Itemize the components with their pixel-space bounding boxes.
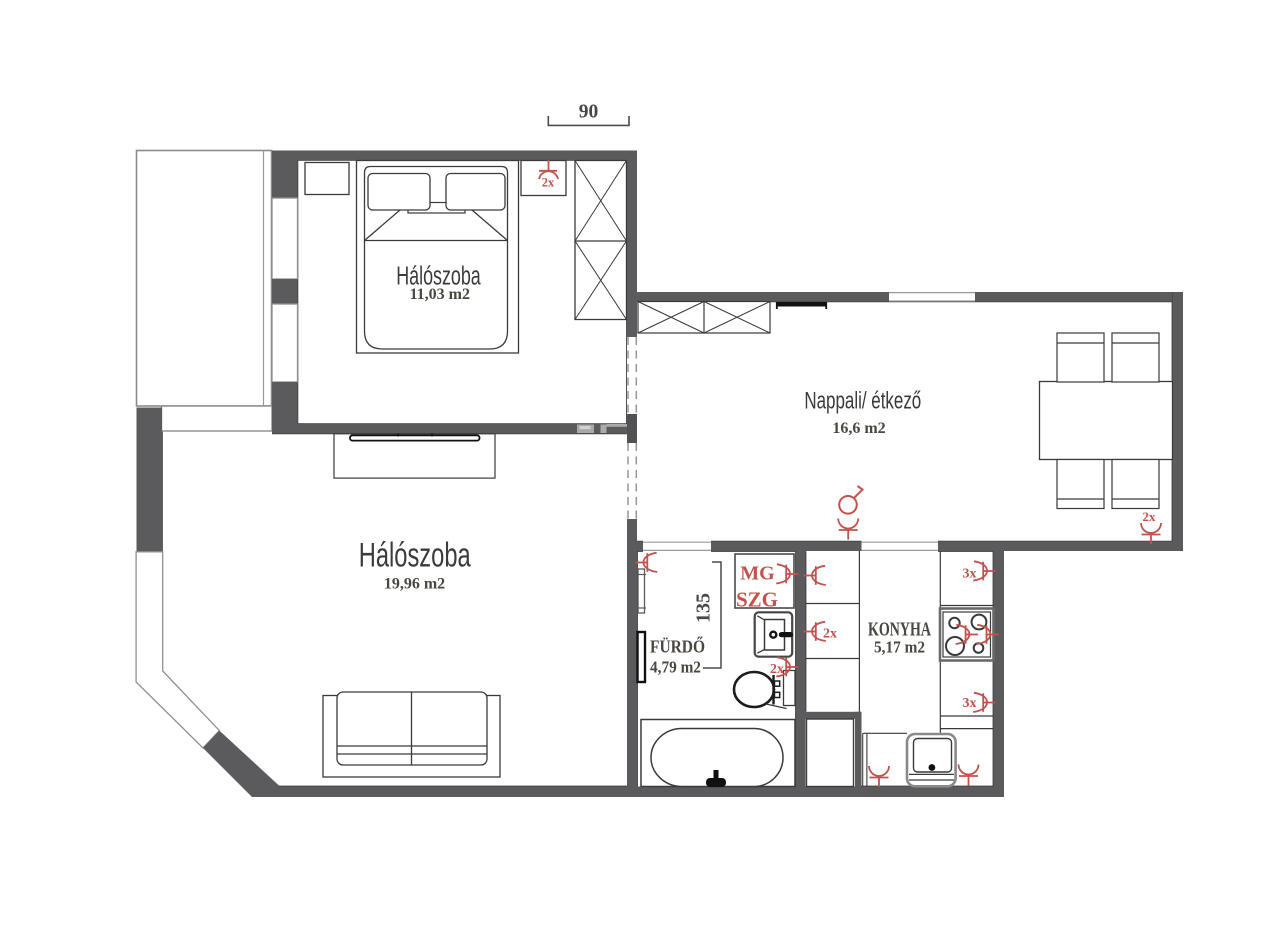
svg-text:FÜRDŐ: FÜRDŐ [650,636,705,656]
svg-text:SZG: SZG [736,588,778,612]
svg-text:2x: 2x [823,627,837,642]
svg-text:Nappali/ étkező: Nappali/ étkező [804,388,921,415]
svg-text:11,03 m2: 11,03 m2 [410,286,470,303]
svg-text:16,6 m2: 16,6 m2 [832,420,885,437]
svg-text:MG: MG [740,563,775,585]
svg-text:2x: 2x [542,176,555,190]
svg-text:Hálószoba: Hálószoba [359,536,472,574]
svg-text:4,79 m2: 4,79 m2 [650,659,701,677]
svg-text:2x: 2x [770,662,784,677]
svg-text:19,96 m2: 19,96 m2 [384,576,445,593]
svg-text:5,17 m2: 5,17 m2 [874,639,925,657]
svg-text:135: 135 [693,593,715,623]
svg-text:2x: 2x [1143,509,1157,524]
svg-text:3x: 3x [963,567,977,582]
svg-text:KONYHA: KONYHA [868,618,931,640]
svg-text:90: 90 [579,102,599,123]
svg-text:3x: 3x [963,696,977,711]
